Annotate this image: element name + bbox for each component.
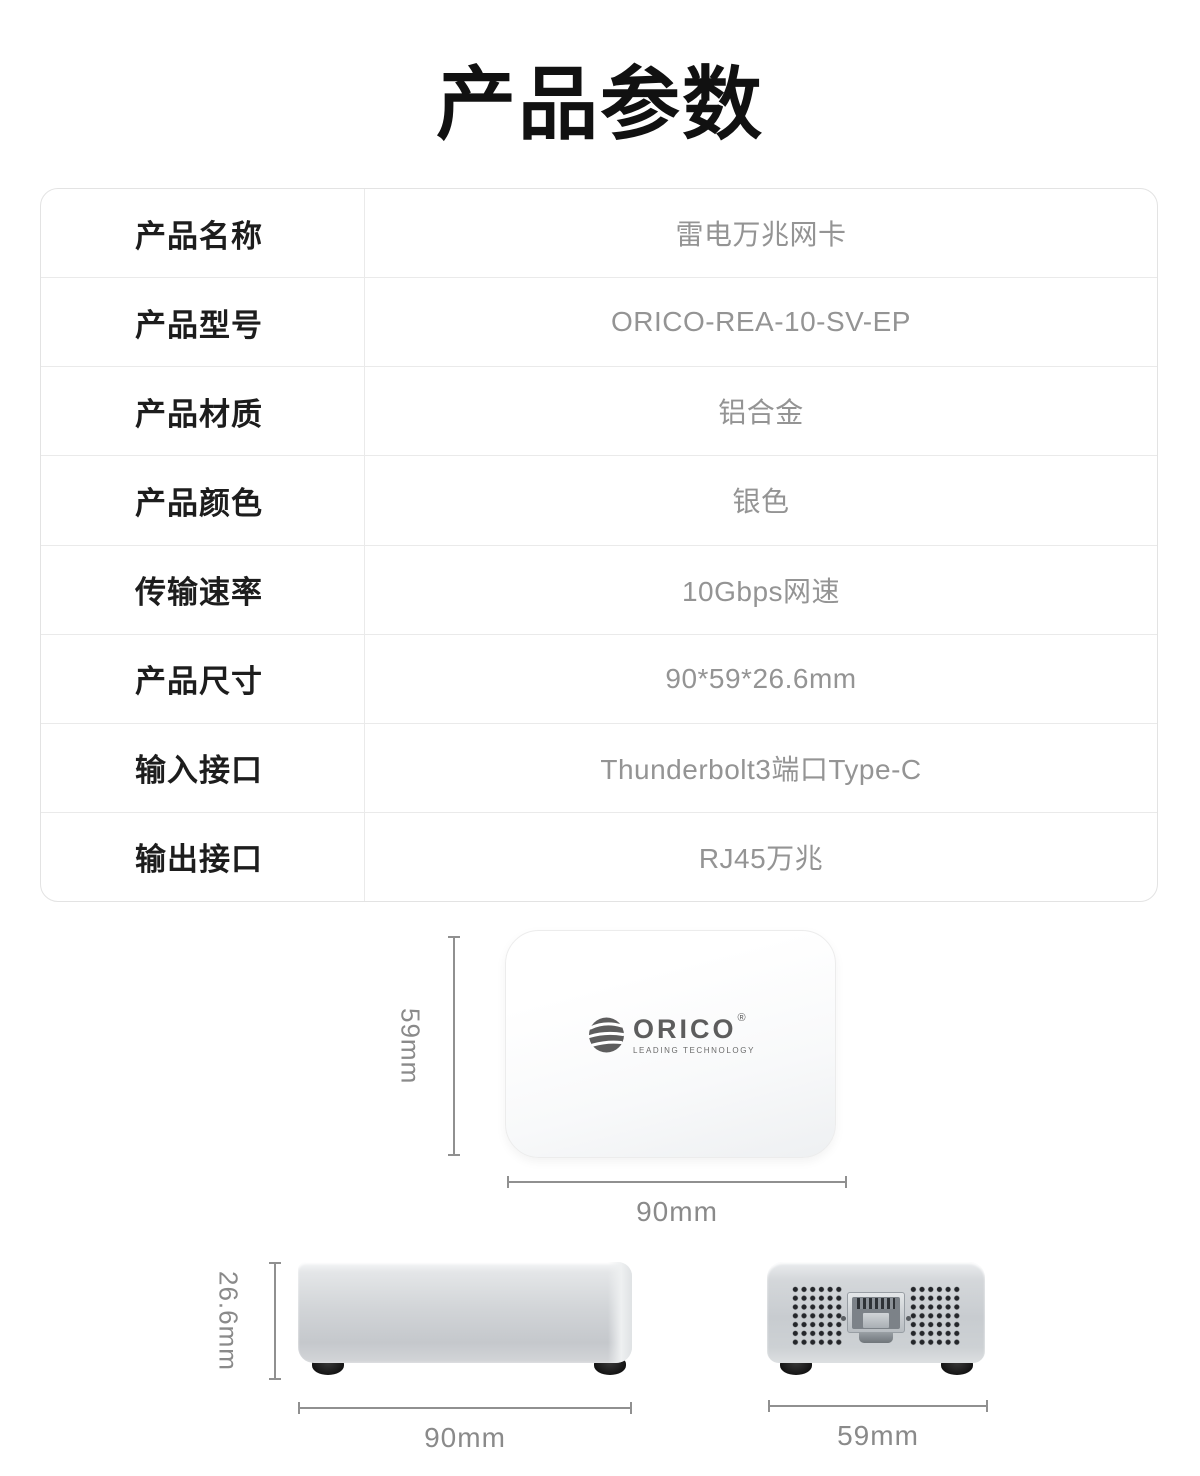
spec-row-color: 产品颜色 银色 [41, 456, 1157, 545]
spec-row-material: 产品材质 铝合金 [41, 367, 1157, 456]
product-parameters-page: 产品参数 产品名称 雷电万兆网卡 产品型号 ORICO-REA-10-SV-EP… [0, 0, 1200, 1476]
spec-table: 产品名称 雷电万兆网卡 产品型号 ORICO-REA-10-SV-EP 产品材质… [40, 188, 1158, 902]
rj45-pins [857, 1298, 895, 1309]
vent-holes-right [909, 1285, 961, 1346]
spec-row-input-port: 输入接口 Thunderbolt3端口Type-C [41, 724, 1157, 813]
spec-row-product-name: 产品名称 雷电万兆网卡 [41, 189, 1157, 278]
device-side-view [298, 1262, 632, 1363]
spec-label: 产品尺寸 [41, 635, 365, 723]
spec-row-dimensions: 产品尺寸 90*59*26.6mm [41, 635, 1157, 724]
orico-swirl-icon [586, 1015, 626, 1055]
orico-logo-text: ORICO ® LEADING TECHNOLOGY [633, 1016, 755, 1055]
top-view-width-label: 90mm [507, 1196, 847, 1228]
front-view-width-dimension-line [768, 1405, 988, 1407]
screw-dot [841, 1316, 846, 1321]
spec-label: 产品名称 [41, 189, 365, 277]
spec-row-output-port: 输出接口 RJ45万兆 [41, 813, 1157, 901]
device-front-view [767, 1262, 985, 1363]
spec-value: 10Gbps网速 [365, 546, 1157, 634]
rj45-inner-block [863, 1313, 889, 1328]
spec-label: 输入接口 [41, 724, 365, 812]
side-view-height-label: 26.6mm [206, 1258, 250, 1384]
page-title: 产品参数 [0, 40, 1200, 156]
rj45-port-cavity [852, 1297, 900, 1329]
top-view-height-label: 59mm [388, 936, 432, 1156]
orico-brand-word: ORICO ® [633, 1016, 755, 1043]
vent-holes-left [791, 1285, 843, 1346]
front-view-width-label: 59mm [768, 1420, 988, 1452]
spec-value: RJ45万兆 [365, 813, 1157, 901]
side-view-width-label: 90mm [298, 1422, 632, 1454]
spec-value: 铝合金 [365, 367, 1157, 455]
orico-brand-name: ORICO [633, 1016, 737, 1043]
spec-value: Thunderbolt3端口Type-C [365, 724, 1157, 812]
top-view-height-dimension-line [453, 936, 455, 1156]
top-view-width-dimension-line [507, 1181, 847, 1183]
orico-logo: ORICO ® LEADING TECHNOLOGY [586, 1015, 755, 1055]
side-view-width-dimension-line [298, 1407, 632, 1409]
spec-value: 雷电万兆网卡 [365, 189, 1157, 277]
orico-tagline: LEADING TECHNOLOGY [633, 1046, 755, 1055]
spec-label: 输出接口 [41, 813, 365, 901]
rj45-port-frame [847, 1292, 905, 1333]
spec-label: 产品材质 [41, 367, 365, 455]
spec-row-model: 产品型号 ORICO-REA-10-SV-EP [41, 278, 1157, 367]
spec-label: 传输速率 [41, 546, 365, 634]
spec-value: ORICO-REA-10-SV-EP [365, 278, 1157, 366]
side-view-height-dimension-line [274, 1262, 276, 1380]
screw-dot [906, 1316, 911, 1321]
device-top-view: ORICO ® LEADING TECHNOLOGY [505, 930, 836, 1158]
spec-value: 银色 [365, 456, 1157, 544]
spec-label: 产品颜色 [41, 456, 365, 544]
spec-label: 产品型号 [41, 278, 365, 366]
registered-mark: ® [738, 1013, 749, 1024]
rj45-port [847, 1292, 905, 1344]
rj45-latch-tab [859, 1332, 893, 1343]
spec-value: 90*59*26.6mm [365, 635, 1157, 723]
spec-row-speed: 传输速率 10Gbps网速 [41, 546, 1157, 635]
